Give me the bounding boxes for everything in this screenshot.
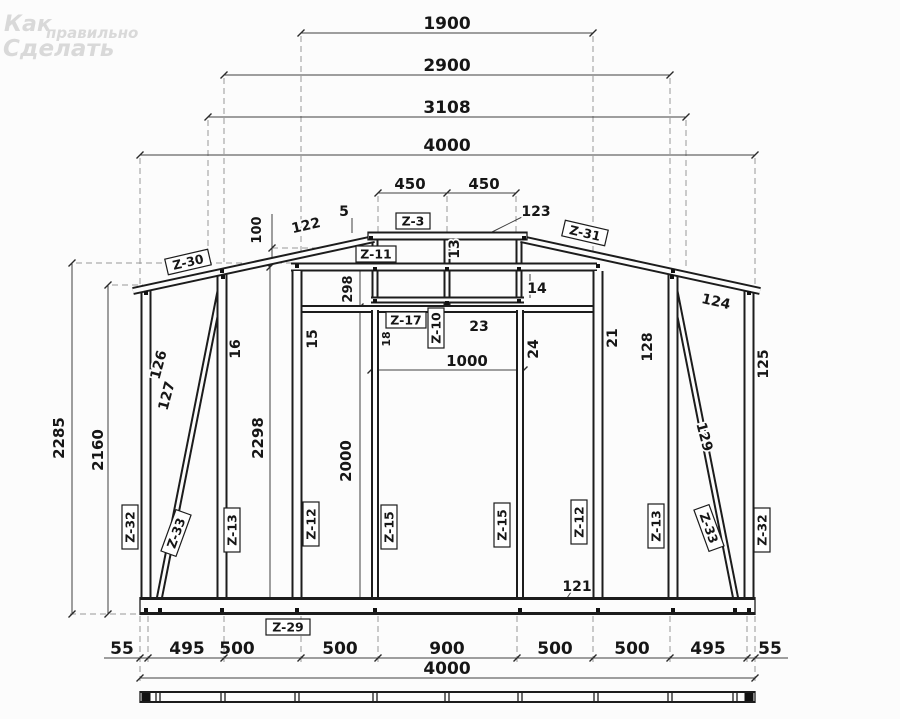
part-23: 23 (469, 319, 488, 335)
dim-55-right: 55 (758, 639, 782, 659)
label-z10: Z-10 (428, 308, 444, 348)
label-z32-right: Z-32 (754, 508, 770, 552)
part-123: 123 (521, 204, 550, 220)
part-122: 122 (290, 215, 322, 237)
dim-100: 100 (250, 216, 265, 243)
svg-text:Z-15: Z-15 (382, 511, 397, 542)
label-z33-left: Z-33 (161, 510, 191, 557)
dim-450-left: 450 (394, 175, 425, 193)
label-z17: Z-17 (386, 312, 426, 328)
dim-1900: 1900 (423, 14, 470, 34)
part-128: 128 (640, 332, 656, 361)
label-z12-left: Z-12 (303, 502, 319, 546)
svg-text:Z-3: Z-3 (402, 214, 425, 229)
bar-end-block-right (745, 693, 754, 701)
svg-text:Z-30: Z-30 (171, 251, 205, 273)
dim-495-left: 495 (169, 639, 205, 659)
svg-text:Z-32: Z-32 (755, 514, 770, 545)
part-24: 24 (526, 339, 542, 359)
part-21: 21 (605, 328, 621, 347)
part-5: 5 (339, 204, 349, 220)
watermark: Как правильно Сделать (3, 12, 138, 62)
frame-elevation-drawing: Как правильно Сделать (0, 0, 900, 719)
dimension-lines (69, 30, 789, 682)
watermark-word3: Сделать (3, 36, 114, 62)
label-z29: Z-29 (266, 619, 310, 635)
dim-2285: 2285 (50, 417, 68, 459)
bar-end-block-left (142, 693, 151, 701)
dim-55-left: 55 (110, 639, 134, 659)
dim-4000-bottom: 4000 (423, 659, 470, 679)
dim-298: 298 (341, 275, 356, 302)
dim-500-d: 500 (614, 639, 650, 659)
dim-500-c: 500 (537, 639, 573, 659)
svg-text:Z-13: Z-13 (649, 510, 664, 541)
dim-900: 900 (429, 639, 465, 659)
part-125: 125 (756, 349, 772, 378)
svg-text:Z-10: Z-10 (429, 312, 444, 344)
dim-2900: 2900 (423, 56, 470, 76)
dim-1000: 1000 (446, 352, 488, 370)
svg-text:Z-29: Z-29 (272, 620, 303, 635)
sill-plan-bar (140, 691, 755, 703)
label-z15-right: Z-15 (494, 503, 510, 547)
dim-500-b: 500 (322, 639, 358, 659)
part-16: 16 (228, 339, 244, 358)
label-z30: Z-30 (165, 249, 211, 274)
dim-3108: 3108 (423, 98, 470, 118)
part-127: 127 (156, 380, 179, 412)
dim-2000: 2000 (337, 440, 355, 482)
svg-text:Z-12: Z-12 (572, 506, 587, 537)
part-13: 13 (447, 239, 463, 258)
dim-495-right: 495 (690, 639, 726, 659)
label-z13-left: Z-13 (224, 508, 240, 552)
svg-text:Z-31: Z-31 (568, 222, 602, 244)
label-z12-right: Z-12 (571, 500, 587, 544)
part-129: 129 (692, 421, 715, 453)
dim-4000-top: 4000 (423, 136, 470, 156)
label-z11: Z-11 (356, 246, 396, 262)
dim-2160: 2160 (89, 429, 107, 471)
frame-structure (133, 232, 760, 616)
dim-2298: 2298 (249, 417, 267, 459)
part-124: 124 (700, 291, 732, 313)
label-z3: Z-3 (396, 213, 430, 229)
part-121: 121 (562, 579, 591, 595)
drawing-page: Как правильно Сделать (0, 0, 900, 719)
label-z13-right: Z-13 (648, 504, 664, 548)
svg-text:Z-13: Z-13 (225, 514, 240, 545)
svg-text:Z-32: Z-32 (123, 511, 138, 542)
label-z15-left: Z-15 (381, 505, 397, 549)
dim-450-right: 450 (468, 175, 499, 193)
svg-text:Z-12: Z-12 (304, 508, 319, 539)
part-15: 15 (305, 329, 321, 348)
svg-text:Z-17: Z-17 (390, 313, 421, 328)
label-z32-left: Z-32 (122, 505, 138, 549)
svg-text:Z-11: Z-11 (360, 247, 391, 262)
part-18: 18 (380, 331, 393, 346)
label-z31: Z-31 (562, 220, 608, 245)
dim-500-a: 500 (219, 639, 255, 659)
part-14: 14 (527, 281, 547, 297)
svg-text:Z-15: Z-15 (495, 509, 510, 540)
